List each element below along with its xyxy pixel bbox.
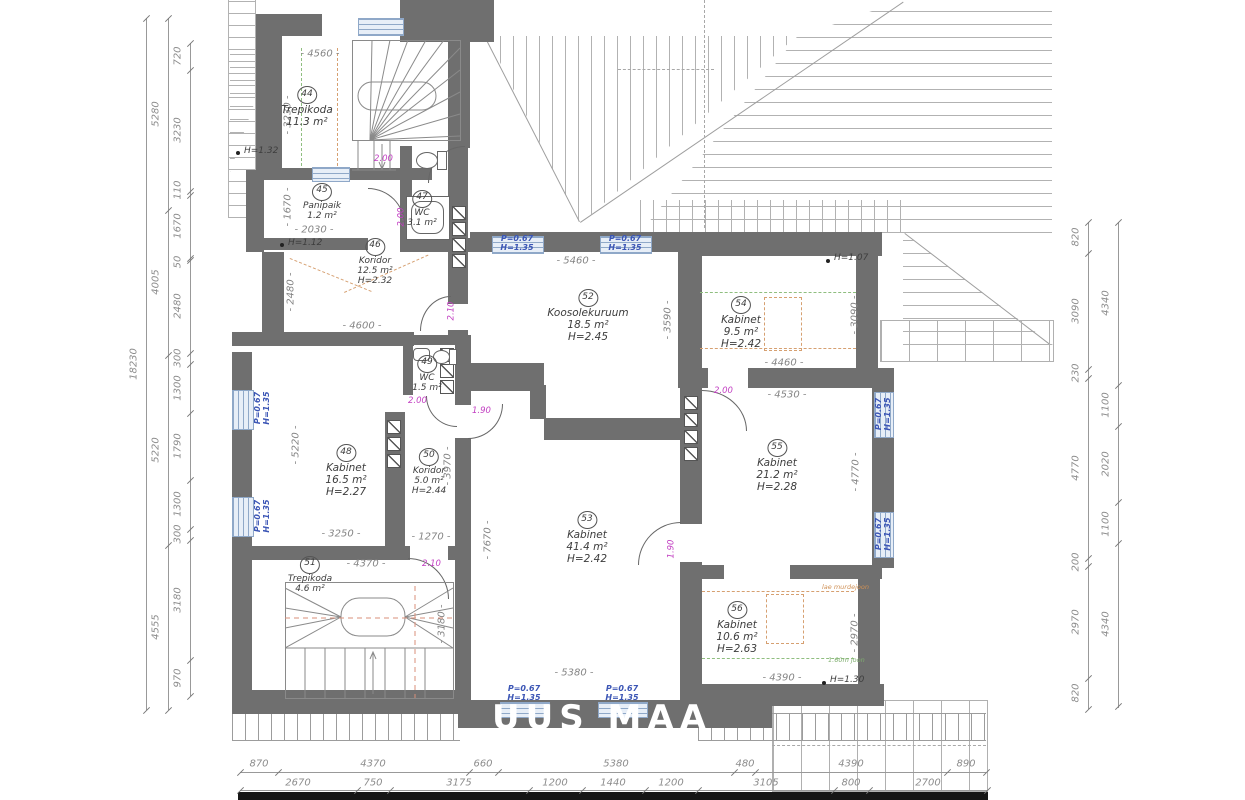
room-label-55: 55 Kabinet 21.2 m² H=2.28 xyxy=(756,439,797,493)
room-label-54: 54 Kabinet 9.5 m² H=2.42 xyxy=(721,296,761,350)
window-h: H=1.35 xyxy=(883,397,892,430)
room-label-46: 46 Koridor 12.5 m² H=2.32 xyxy=(357,238,392,286)
dim-tick xyxy=(187,692,194,699)
room-number: 50 xyxy=(419,448,439,466)
dim-label: 5280 xyxy=(151,101,162,126)
dim-tick xyxy=(187,525,194,532)
dim-label: 970 xyxy=(173,668,184,687)
interior-dim: - 3250 - xyxy=(321,529,360,540)
window xyxy=(358,18,404,36)
room-name: Trepikoda xyxy=(281,104,333,116)
window-p: P=0.67 xyxy=(874,397,883,430)
interior-dim: - 4460 - xyxy=(764,358,803,369)
interior-dim: - 5380 - xyxy=(554,668,593,679)
room-area: 1.5 m² xyxy=(412,383,442,393)
dim-tick xyxy=(237,768,244,775)
room-height: H=2.42 xyxy=(566,553,607,565)
wall-segment xyxy=(262,252,284,342)
flue-symbol xyxy=(684,413,698,427)
room-height: H=2.44 xyxy=(412,486,446,496)
interior-dim: - 5460 - xyxy=(556,256,595,267)
door-height-label: 2.00 xyxy=(374,154,393,164)
dim-tick xyxy=(187,409,194,416)
interior-dim: - 4370 - xyxy=(346,559,385,570)
room-name: Kabinet xyxy=(721,314,761,326)
room-label-50: 50 Koridor 5.0 m² H=2.44 xyxy=(412,448,446,496)
window-p: P=0.67 xyxy=(253,391,262,424)
dim-label: 4005 xyxy=(151,269,162,294)
room-area: 10.6 m² xyxy=(716,631,757,643)
roof-eave-band xyxy=(640,200,912,233)
height-marker: H=1.12 xyxy=(288,238,322,248)
door-height-label: 2.10 xyxy=(422,559,441,569)
room-label-45: 45 Panipaik 1.2 m² xyxy=(303,183,341,221)
wall-segment xyxy=(256,14,322,36)
dim-tick xyxy=(495,768,502,775)
dim-label: 5220 xyxy=(151,437,162,462)
toilet-tank xyxy=(449,349,457,365)
interior-dim: - 7670 - xyxy=(483,520,494,559)
room-name: Kabinet xyxy=(325,462,366,474)
dim-label: 890 xyxy=(956,759,975,770)
dim-label: 4390 xyxy=(838,759,863,770)
dim-label: 4770 xyxy=(1071,455,1082,480)
dim-chain-right-outer xyxy=(1118,222,1119,708)
room-height: H=2.45 xyxy=(547,331,628,343)
dim-tick xyxy=(1085,374,1092,381)
dim-tick xyxy=(1115,702,1122,709)
dim-label: 1100 xyxy=(1101,511,1112,536)
door-height-label: 1.90 xyxy=(472,406,491,416)
bottom-bar xyxy=(238,792,988,800)
flue-symbol xyxy=(440,364,454,378)
room-area: 11.3 m² xyxy=(281,116,333,128)
wall-segment xyxy=(790,565,882,579)
room-number: 49 xyxy=(417,355,437,373)
room-name: Koosolekuruum xyxy=(547,307,628,319)
dim-label: 230 xyxy=(1071,363,1082,382)
window xyxy=(312,167,350,182)
floor-plan: 44 Trepikoda 11.3 m² 45 Panipaik 1.2 m² … xyxy=(0,0,1245,800)
room-area: 4.6 m² xyxy=(288,584,332,594)
dim-label: 50 xyxy=(173,256,184,269)
dim-label: 4370 xyxy=(360,759,385,770)
height-line-label: 1.60m joon xyxy=(828,656,865,664)
room-label-56: 56 Kabinet 10.6 m² H=2.63 xyxy=(716,601,757,655)
dim-tick xyxy=(1085,365,1092,372)
interior-dim: - 4390 - xyxy=(762,673,801,684)
room-number: 51 xyxy=(300,556,320,574)
interior-dim: - 4770 - xyxy=(851,452,862,491)
room-number: 56 xyxy=(727,601,747,619)
window-p: P=0.67 xyxy=(874,517,883,550)
terrace-grid xyxy=(880,320,1054,362)
window-label: P=0.67 H=1.35 xyxy=(874,517,892,550)
window-h: H=1.35 xyxy=(608,243,641,252)
wall-segment xyxy=(232,332,414,346)
dim-tick xyxy=(1115,539,1122,546)
toilet xyxy=(416,152,438,169)
dim-label: 4340 xyxy=(1101,611,1112,636)
interior-dim: - 3590 - xyxy=(663,300,674,339)
height-marker-dot xyxy=(826,259,830,263)
room-area: 3.1 m² xyxy=(407,218,437,228)
interior-dim: - 1270 - xyxy=(411,532,450,543)
room-area: 12.5 m² xyxy=(357,266,392,276)
flue-symbol xyxy=(684,447,698,461)
dim-chain-bottom-upper xyxy=(240,772,986,773)
window xyxy=(232,390,254,430)
dim-label: 660 xyxy=(473,759,492,770)
window-p: P=0.67 xyxy=(608,234,641,243)
dim-chain-left-mid xyxy=(168,18,169,710)
flue-symbol xyxy=(452,206,466,220)
dim-label: 3090 xyxy=(1071,298,1082,323)
room-area: 1.2 m² xyxy=(303,211,341,221)
wall-segment xyxy=(455,438,471,552)
room-number: 48 xyxy=(336,444,356,462)
dim-tick xyxy=(1085,554,1092,561)
ceiling-fold-line xyxy=(337,48,338,166)
door-height-label: 2.00 xyxy=(408,396,427,406)
room-name: WC xyxy=(412,373,442,383)
dim-label: 870 xyxy=(249,759,268,770)
room-area: 16.5 m² xyxy=(325,474,366,486)
dim-tick xyxy=(1085,218,1092,225)
dim-tick xyxy=(275,768,282,775)
room-area: 18.5 m² xyxy=(547,319,628,331)
room-number: 53 xyxy=(577,511,597,529)
height-line xyxy=(700,292,856,293)
window-p: P=0.67 xyxy=(253,499,262,532)
dim-tick xyxy=(143,14,150,21)
dim-tick xyxy=(1115,218,1122,225)
height-marker: H=1.30 xyxy=(830,675,864,685)
watermark: UUS MAA xyxy=(492,698,712,738)
dim-label: 1100 xyxy=(1101,392,1112,417)
dim-label: 3175 xyxy=(446,778,471,789)
room-height: H=2.32 xyxy=(357,276,392,286)
interior-dim: - 5220 - xyxy=(291,425,302,464)
wall-segment xyxy=(688,684,884,706)
dim-tick xyxy=(165,351,172,358)
room-number: 44 xyxy=(297,86,317,104)
wall-segment xyxy=(856,368,894,388)
interior-dim: - 1670 - xyxy=(283,187,294,226)
dim-tick xyxy=(1085,562,1092,569)
height-marker-dot xyxy=(236,151,240,155)
dim-label: 820 xyxy=(1071,683,1082,702)
room-name: Koridor xyxy=(412,466,446,476)
dim-tick xyxy=(187,476,194,483)
dim-label: 2670 xyxy=(285,778,310,789)
wall-segment xyxy=(702,565,724,579)
door-arc xyxy=(702,390,747,431)
interior-dim: - 3090 - xyxy=(850,295,861,334)
window-h: H=1.35 xyxy=(883,517,892,550)
dim-label: 1790 xyxy=(173,433,184,458)
room-name: Kabinet xyxy=(566,529,607,541)
dim-tick xyxy=(187,66,194,73)
roof-dashed-line xyxy=(704,0,705,228)
dim-label: 18230 xyxy=(129,348,140,380)
dim-label: 2020 xyxy=(1101,451,1112,476)
flue-symbol xyxy=(452,254,466,268)
dim-label: 720 xyxy=(173,46,184,65)
interior-dim: - 4530 - xyxy=(767,390,806,401)
room-area: 21.2 m² xyxy=(756,469,797,481)
interior-dim: - 4560 - xyxy=(300,49,339,60)
flue-symbol xyxy=(452,238,466,252)
dim-label: 4340 xyxy=(1101,290,1112,315)
room-number: 45 xyxy=(312,183,332,201)
window-h: H=1.35 xyxy=(262,499,271,532)
dim-tick xyxy=(1115,422,1122,429)
flue-symbol xyxy=(387,420,401,434)
interior-dim: - 2970 - xyxy=(850,613,861,652)
flue-symbol xyxy=(387,454,401,468)
room-number: 52 xyxy=(578,289,598,307)
dim-label: 1670 xyxy=(173,213,184,238)
dim-label: 1300 xyxy=(173,375,184,400)
room-name: Panipaik xyxy=(303,201,341,211)
height-marker-dot xyxy=(822,681,826,685)
dim-label: 5380 xyxy=(603,759,628,770)
dim-tick xyxy=(1085,249,1092,256)
dim-tick xyxy=(165,14,172,21)
dim-label: 2700 xyxy=(915,778,940,789)
dim-label: 1440 xyxy=(600,778,625,789)
window-label: P=0.67 H=1.35 xyxy=(608,234,641,252)
ceiling-fold-label: lae murdejoon xyxy=(822,583,869,591)
room-name: WC xyxy=(407,208,437,218)
dim-tick xyxy=(1115,498,1122,505)
room-name: Kabinet xyxy=(756,457,797,469)
dim-label: 480 xyxy=(735,759,754,770)
window-label: P=0.67 H=1.35 xyxy=(500,234,533,252)
window-label: P=0.67 H=1.35 xyxy=(253,391,271,424)
window-p: P=0.67 xyxy=(500,234,533,243)
dim-label: 750 xyxy=(363,778,382,789)
interior-dim: - 4600 - xyxy=(342,321,381,332)
roof-dashed-line xyxy=(618,69,714,70)
room-name: Kabinet xyxy=(716,619,757,631)
terrace-band-left xyxy=(232,713,460,741)
dim-label: 3180 xyxy=(173,587,184,612)
dim-label: 2970 xyxy=(1071,609,1082,634)
ceiling-fold-line xyxy=(702,591,854,592)
window xyxy=(232,497,254,537)
dim-tick xyxy=(1085,705,1092,712)
wall-segment xyxy=(690,368,708,388)
room-number: 46 xyxy=(365,238,385,256)
dim-tick xyxy=(165,206,172,213)
room-height: H=2.42 xyxy=(721,338,761,350)
room-label-51: 51 Trepikoda 4.6 m² xyxy=(288,556,332,594)
wall-segment xyxy=(544,418,682,440)
flue-symbol xyxy=(387,437,401,451)
stair-51 xyxy=(285,582,455,700)
room-height: H=2.27 xyxy=(325,486,366,498)
wall-segment xyxy=(530,385,546,419)
dim-tick xyxy=(752,768,759,775)
dim-label: 3230 xyxy=(173,117,184,142)
roof-opening xyxy=(766,594,804,644)
window-h: H=1.35 xyxy=(262,391,271,424)
height-marker: H=1.07 xyxy=(834,253,868,263)
dim-tick xyxy=(187,360,194,367)
stair-44 xyxy=(352,40,464,172)
room-label-53: 53 Kabinet 41.4 m² H=2.42 xyxy=(566,511,607,565)
door-height-label: 2.10 xyxy=(446,302,456,321)
toilet-tank xyxy=(437,151,447,170)
room-label-48: 48 Kabinet 16.5 m² H=2.27 xyxy=(325,444,366,498)
dim-chain-bottom-lower xyxy=(240,790,987,791)
door-height-label: 1.90 xyxy=(666,540,676,559)
room-name: Koridor xyxy=(357,256,392,266)
dim-label: 110 xyxy=(173,180,184,199)
door-height-label: 2.00 xyxy=(714,386,733,396)
room-number: 47 xyxy=(412,190,432,208)
door-height-label: 2.00 xyxy=(396,208,406,227)
dim-label: 1200 xyxy=(542,778,567,789)
wall-segment xyxy=(455,552,471,700)
interior-dim: - 2480 - xyxy=(286,272,297,311)
dim-label: 820 xyxy=(1071,227,1082,246)
flue-symbol xyxy=(452,222,466,236)
window-label: P=0.67 H=1.35 xyxy=(253,499,271,532)
dim-tick xyxy=(187,39,194,46)
dim-label: 3105 xyxy=(753,778,778,789)
roof-opening xyxy=(764,297,802,351)
room-label-52: 52 Koosolekuruum 18.5 m² H=2.45 xyxy=(547,289,628,343)
dim-label: 1200 xyxy=(658,778,683,789)
dim-chain-left-outer xyxy=(146,18,147,710)
wall-segment xyxy=(400,0,494,42)
dim-label: 300 xyxy=(173,348,184,367)
height-marker: H=1.32 xyxy=(244,146,278,156)
flue-symbol xyxy=(684,396,698,410)
wall-segment xyxy=(680,562,702,702)
terrace-dashed-line xyxy=(772,745,986,746)
dim-label: 2480 xyxy=(173,293,184,318)
room-height: H=2.63 xyxy=(716,643,757,655)
room-area: 5.0 m² xyxy=(412,476,446,486)
room-name: Trepikoda xyxy=(288,574,332,584)
dim-label: 300 xyxy=(173,524,184,543)
dim-label: 200 xyxy=(1071,552,1082,571)
dim-tick xyxy=(731,768,738,775)
dim-tick xyxy=(187,349,194,356)
flue-symbol xyxy=(684,430,698,444)
window-p: P=0.67 xyxy=(507,684,540,693)
room-label-47: 47 WC 3.1 m² xyxy=(407,190,437,228)
wall-segment xyxy=(448,546,458,560)
room-area: 9.5 m² xyxy=(721,326,761,338)
room-area: 41.4 m² xyxy=(566,541,607,553)
dim-chain-right-inner xyxy=(1088,222,1089,709)
height-marker-dot xyxy=(280,243,284,247)
room-label-49: 49 WC 1.5 m² xyxy=(412,355,442,393)
dim-chain-left-inner xyxy=(190,43,191,696)
dim-tick xyxy=(1085,674,1092,681)
dim-tick xyxy=(165,706,172,713)
room-height: H=2.28 xyxy=(756,481,797,493)
dim-tick xyxy=(165,541,172,548)
dim-tick xyxy=(187,536,194,543)
dim-label: 4555 xyxy=(151,614,162,639)
dim-label: 800 xyxy=(841,778,860,789)
room-number: 54 xyxy=(731,296,751,314)
interior-dim: - 2030 - xyxy=(294,225,333,236)
window-h: H=1.35 xyxy=(500,243,533,252)
window-label: P=0.67 H=1.35 xyxy=(874,397,892,430)
window-p: P=0.67 xyxy=(605,684,638,693)
dim-tick xyxy=(1115,381,1122,388)
dim-tick xyxy=(466,768,473,775)
dim-tick xyxy=(143,706,150,713)
door-arc xyxy=(426,396,457,427)
dim-tick xyxy=(187,656,194,663)
dim-label: 1300 xyxy=(173,491,184,516)
room-label-44: 44 Trepikoda 11.3 m² xyxy=(281,86,333,128)
room-number: 55 xyxy=(767,439,787,457)
